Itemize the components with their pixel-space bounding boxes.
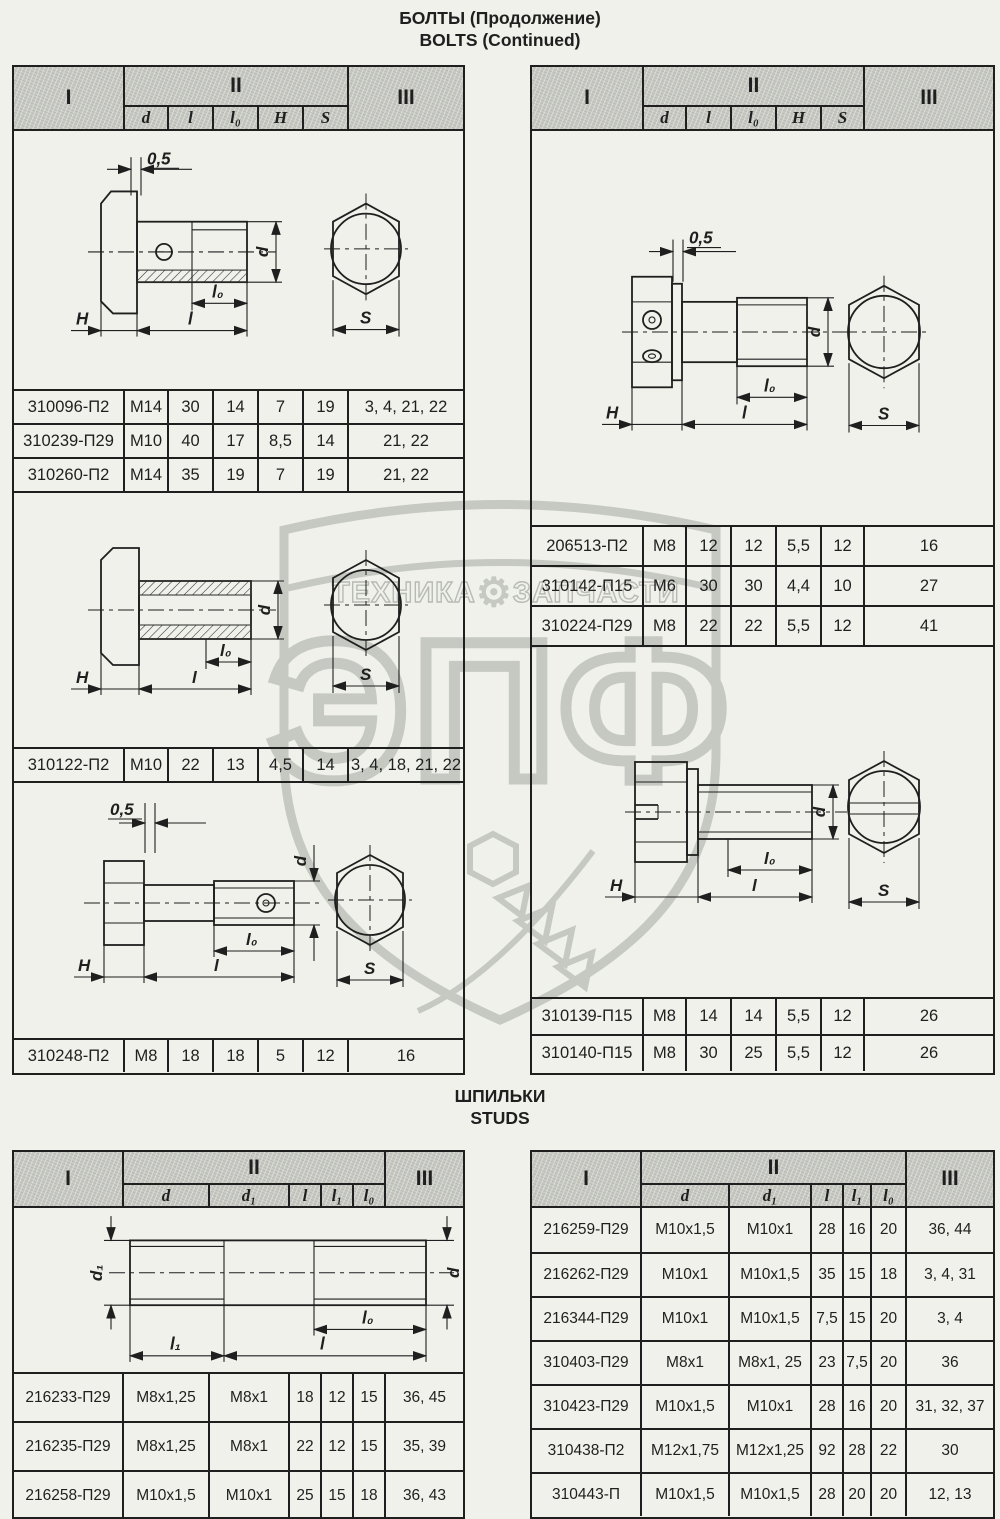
l0-cell: 30 — [732, 567, 777, 605]
table-row: 310423-П29 M10x1,5 M10x1 28 16 20 31, 32… — [532, 1384, 993, 1428]
studs-left-header: I II III d d₁ l l₁ l₀ — [14, 1152, 463, 1208]
d1-cell: M8x1 — [210, 1423, 290, 1470]
l0-cell: 18 — [872, 1254, 907, 1296]
d-cell: M8 — [644, 999, 687, 1034]
refs-cell: 30 — [907, 1430, 993, 1472]
table-row: 310140-П15 M8 30 25 5,5 12 26 — [532, 1034, 993, 1071]
d-cell: M8x1 — [642, 1342, 730, 1384]
l-cell: 18 — [290, 1374, 322, 1421]
l1-cell: 16 — [844, 1386, 872, 1428]
l-cell: 92 — [812, 1430, 844, 1472]
l1-cell: 28 — [844, 1430, 872, 1472]
dim-label: d — [444, 1267, 463, 1278]
refs-cell: 16 — [349, 1040, 463, 1072]
col-group-3: III — [386, 1152, 463, 1206]
d-cell: M10 — [125, 749, 169, 781]
l-cell: 30 — [169, 391, 214, 423]
d-cell: M10x1 — [642, 1298, 730, 1340]
l-cell: 14 — [687, 999, 732, 1034]
d-cell: M10x1 — [642, 1254, 730, 1296]
dim-label: l₀ — [212, 282, 224, 301]
dim-label: d — [810, 806, 829, 817]
col-l0: l₀ — [354, 1185, 386, 1206]
col-group-3: III — [907, 1152, 993, 1206]
d1-cell: M8x1 — [210, 1374, 290, 1421]
refs-cell: 36, 44 — [907, 1208, 993, 1252]
d-cell: M10x1,5 — [124, 1472, 210, 1519]
bolts-left-rows-b: 310122-П2 M10 22 13 4,5 14 3, 4, 18, 21,… — [14, 747, 463, 781]
dim-label: l₀ — [246, 930, 258, 949]
part-number-cell: 310248-П2 — [14, 1040, 125, 1072]
d1-cell: M12x1,25 — [730, 1430, 812, 1472]
d-cell: M6 — [644, 567, 687, 605]
bolt-drawing-hollow: d l₀ l H S — [14, 491, 463, 747]
table-row: 216262-П29 M10x1 M10x1,5 35 15 18 3, 4, … — [532, 1252, 993, 1296]
col-l: l — [169, 107, 214, 129]
part-number-cell: 310239-П29 — [14, 425, 125, 457]
col-l1: l₁ — [322, 1185, 354, 1206]
refs-cell: 41 — [865, 607, 993, 645]
l-cell: 22 — [290, 1423, 322, 1470]
col-H: H — [259, 107, 304, 129]
dim-label: S — [878, 404, 890, 423]
dim-label: d — [291, 855, 310, 866]
dim-label: S — [360, 665, 372, 684]
d-cell: M10x1,5 — [642, 1474, 730, 1516]
dim-label: l₀ — [764, 849, 776, 868]
dim-label: H — [606, 403, 619, 422]
studs-table-right: I II III d d₁ l l₁ l₀ 216259-П29 M10x1,5… — [530, 1150, 995, 1519]
col-l: l — [812, 1185, 844, 1206]
part-number-cell: 310443-П — [532, 1474, 642, 1516]
H-cell: 5,5 — [777, 527, 822, 565]
d-cell: M14 — [125, 459, 169, 491]
table-row: 310122-П2 M10 22 13 4,5 14 3, 4, 18, 21,… — [14, 747, 463, 781]
page-title-en: BOLTS (Continued) — [0, 30, 1000, 52]
col-d1: d₁ — [730, 1185, 812, 1206]
dim-label: l₀ — [220, 641, 232, 660]
d-cell: M10x1,5 — [642, 1386, 730, 1428]
refs-cell: 26 — [865, 999, 993, 1034]
part-number-cell: 310140-П15 — [532, 1036, 644, 1071]
d1-cell: M8x1, 25 — [730, 1342, 812, 1384]
d1-cell: M10x1,5 — [730, 1254, 812, 1296]
col-d: d — [644, 107, 687, 129]
table-row: 310403-П29 M8x1 M8x1, 25 23 7,5 20 36 — [532, 1340, 993, 1384]
d-cell: M8 — [644, 527, 687, 565]
part-number-cell: 310423-П29 — [532, 1386, 642, 1428]
bolts-table-left: I II III d l l₀ H S — [12, 65, 465, 1075]
col-group-1: I — [532, 67, 644, 129]
dim-label: d — [253, 246, 272, 257]
H-cell: 7 — [259, 459, 304, 491]
l0-cell: 17 — [214, 425, 259, 457]
bolts-left-header: I II III d l l₀ H S — [14, 67, 463, 131]
S-cell: 14 — [304, 749, 349, 781]
col-group-2: II — [124, 1152, 386, 1185]
H-cell: 5,5 — [777, 607, 822, 645]
part-number-cell: 310122-П2 — [14, 749, 125, 781]
dim-label: d₁ — [87, 1265, 106, 1282]
l1-cell: 12 — [322, 1423, 354, 1470]
refs-cell: 26 — [865, 1036, 993, 1071]
studs-right-rows: 216259-П29 M10x1,5 M10x1 28 16 20 36, 44… — [532, 1208, 993, 1516]
table-row: 310239-П29 M10 40 17 8,5 14 21, 22 — [14, 423, 463, 457]
bolts-right-rows-a: 206513-П2 M8 12 12 5,5 12 16 310142-П15 … — [532, 525, 993, 645]
l1-cell: 15 — [844, 1254, 872, 1296]
part-number-cell: 216233-П29 — [14, 1374, 124, 1421]
S-cell: 12 — [822, 607, 865, 645]
part-number-cell: 206513-П2 — [532, 527, 644, 565]
refs-cell: 16 — [865, 527, 993, 565]
col-group-1: I — [532, 1152, 642, 1206]
col-d1: d₁ — [210, 1185, 290, 1206]
refs-cell: 36, 45 — [386, 1374, 463, 1421]
part-number-cell: 216344-П29 — [532, 1298, 642, 1340]
d-cell: M10 — [125, 425, 169, 457]
dim-label: 0,5 — [110, 800, 134, 819]
S-cell: 12 — [822, 999, 865, 1034]
dim-label: l₀ — [362, 1308, 374, 1327]
S-cell: 14 — [304, 425, 349, 457]
studs-right-header: I II III d d₁ l l₁ l₀ — [532, 1152, 993, 1208]
bolts-right-rows-b: 310139-П15 M8 14 14 5,5 12 26 310140-П15… — [532, 997, 993, 1071]
dim-label: 0,5 — [689, 229, 713, 248]
table-row: 216259-П29 M10x1,5 M10x1 28 16 20 36, 44 — [532, 1208, 993, 1252]
refs-cell: 3, 4, 21, 22 — [349, 391, 463, 423]
col-l1: l₁ — [844, 1185, 872, 1206]
S-cell: 12 — [822, 527, 865, 565]
d1-cell: M10x1,5 — [730, 1298, 812, 1340]
l0-cell: 19 — [214, 459, 259, 491]
dim-label: l — [188, 309, 194, 328]
S-cell: 19 — [304, 391, 349, 423]
l0-cell: 20 — [872, 1298, 907, 1340]
l-cell: 23 — [812, 1342, 844, 1384]
dim-label: d — [805, 326, 824, 337]
l0-cell: 14 — [214, 391, 259, 423]
d1-cell: M10x1,5 — [730, 1474, 812, 1516]
dim-label: d — [255, 604, 274, 615]
col-d: d — [125, 107, 169, 129]
l0-cell: 25 — [732, 1036, 777, 1071]
d1-cell: M10x1 — [730, 1208, 812, 1252]
dim-label: H — [610, 876, 623, 895]
refs-cell: 21, 22 — [349, 425, 463, 457]
table-row: 310443-П M10x1,5 M10x1,5 28 20 20 12, 13 — [532, 1472, 993, 1516]
bolt-drawing-banjo: 0,5 d l₀ l H S — [14, 131, 463, 389]
l1-cell: 15 — [844, 1298, 872, 1340]
col-group-2: II — [642, 1152, 907, 1185]
col-group-3: III — [349, 67, 463, 129]
table-row: 310139-П15 M8 14 14 5,5 12 26 — [532, 997, 993, 1034]
d-cell: M10x1,5 — [642, 1208, 730, 1252]
l-cell: 22 — [169, 749, 214, 781]
col-d: d — [124, 1185, 210, 1206]
l-cell: 28 — [812, 1386, 844, 1428]
table-row: 310248-П2 M8 18 18 5 12 16 — [14, 1038, 463, 1072]
part-number-cell: 310096-П2 — [14, 391, 125, 423]
part-number-cell: 216258-П29 — [14, 1472, 124, 1519]
l-cell: 35 — [812, 1254, 844, 1296]
l1-cell: 20 — [844, 1474, 872, 1516]
part-number-cell: 310260-П2 — [14, 459, 125, 491]
col-l0: l₀ — [214, 107, 259, 129]
table-row: 310224-П29 M8 22 22 5,5 12 41 — [532, 605, 993, 645]
table-row: 216344-П29 M10x1 M10x1,5 7,5 15 20 3, 4 — [532, 1296, 993, 1340]
dim-label: l — [320, 1335, 326, 1354]
col-S: S — [304, 107, 349, 129]
refs-cell: 3, 4, 31 — [907, 1254, 993, 1296]
l1-cell: 15 — [322, 1472, 354, 1519]
table-row: 216258-П29 M10x1,5 M10x1 25 15 18 36, 43 — [14, 1470, 463, 1519]
l-cell: 18 — [169, 1040, 214, 1072]
dim-label: S — [878, 881, 890, 900]
col-l: l — [687, 107, 732, 129]
col-l0: l₀ — [732, 107, 777, 129]
H-cell: 4,5 — [259, 749, 304, 781]
refs-cell: 21, 22 — [349, 459, 463, 491]
l0-cell: 22 — [872, 1430, 907, 1472]
H-cell: 7 — [259, 391, 304, 423]
l0-cell: 15 — [354, 1374, 386, 1421]
l-cell: 28 — [812, 1474, 844, 1516]
part-number-cell: 216235-П29 — [14, 1423, 124, 1470]
table-row: 310096-П2 M14 30 14 7 19 3, 4, 21, 22 — [14, 389, 463, 423]
l1-cell: 7,5 — [844, 1342, 872, 1384]
d-cell: M8 — [644, 1036, 687, 1071]
table-row: 310260-П2 M14 35 19 7 19 21, 22 — [14, 457, 463, 491]
l0-cell: 15 — [354, 1423, 386, 1470]
table-row: 310438-П2 M12x1,75 M12x1,25 92 28 22 30 — [532, 1428, 993, 1472]
studs-title-en: STUDS — [0, 1108, 1000, 1130]
studs-table-left: I II III d d₁ l l₁ l₀ d₁ — [12, 1150, 465, 1519]
l-cell: 7,5 — [812, 1298, 844, 1340]
bolts-right-header: I II III d l l₀ H S — [532, 67, 993, 131]
bolts-table-right: I II III d l l₀ H S 0,5 — [530, 65, 995, 1075]
dim-label: l — [752, 876, 758, 895]
part-number-cell: 216259-П29 — [532, 1208, 642, 1252]
dim-label: 0,5 — [147, 149, 171, 168]
studs-left-rows: 216233-П29 M8x1,25 M8x1 18 12 15 36, 45 … — [14, 1372, 463, 1519]
dim-label: H — [76, 309, 89, 328]
col-group-1: I — [14, 1152, 124, 1206]
l-cell: 30 — [687, 567, 732, 605]
dim-label: l — [214, 956, 220, 975]
l-cell: 22 — [687, 607, 732, 645]
S-cell: 10 — [822, 567, 865, 605]
col-group-2: II — [644, 67, 865, 107]
bolt-drawing-drilled-head: 0,5 d l₀ l H S — [532, 131, 993, 525]
S-cell: 12 — [304, 1040, 349, 1072]
dim-label: H — [76, 668, 89, 687]
l0-cell: 18 — [354, 1472, 386, 1519]
l-cell: 40 — [169, 425, 214, 457]
col-S: S — [822, 107, 865, 129]
dim-label: l₀ — [764, 376, 776, 395]
dim-label: S — [360, 308, 372, 327]
l-cell: 35 — [169, 459, 214, 491]
part-number-cell: 310224-П29 — [532, 607, 644, 645]
dim-label: H — [78, 956, 91, 975]
l1-cell: 16 — [844, 1208, 872, 1252]
col-group-1: I — [14, 67, 125, 129]
H-cell: 4,4 — [777, 567, 822, 605]
bolts-left-rows-c: 310248-П2 M8 18 18 5 12 16 — [14, 1038, 463, 1072]
l0-cell: 22 — [732, 607, 777, 645]
d-cell: M14 — [125, 391, 169, 423]
dim-label: l₁ — [170, 1335, 181, 1354]
refs-cell: 3, 4 — [907, 1298, 993, 1340]
refs-cell: 12, 13 — [907, 1474, 993, 1516]
refs-cell: 36 — [907, 1342, 993, 1384]
table-row: 216233-П29 M8x1,25 M8x1 18 12 15 36, 45 — [14, 1372, 463, 1421]
col-l0: l₀ — [872, 1185, 907, 1206]
col-d: d — [642, 1185, 730, 1206]
l0-cell: 18 — [214, 1040, 259, 1072]
l-cell: 30 — [687, 1036, 732, 1071]
d1-cell: M10x1 — [730, 1386, 812, 1428]
H-cell: 5 — [259, 1040, 304, 1072]
H-cell: 8,5 — [259, 425, 304, 457]
col-l: l — [290, 1185, 322, 1206]
col-group-2: II — [125, 67, 349, 107]
l0-cell: 20 — [872, 1474, 907, 1516]
H-cell: 5,5 — [777, 999, 822, 1034]
dim-label: l — [192, 668, 198, 687]
d-cell: M8 — [644, 607, 687, 645]
S-cell: 19 — [304, 459, 349, 491]
bolt-drawing-cotter: 0,5 d l₀ l H S — [14, 781, 463, 1038]
col-group-3: III — [865, 67, 993, 129]
l1-cell: 12 — [322, 1374, 354, 1421]
l0-cell: 12 — [732, 527, 777, 565]
dim-label: S — [364, 959, 376, 978]
studs-title-ru: ШПИЛЬКИ — [0, 1086, 1000, 1108]
l0-cell: 20 — [872, 1386, 907, 1428]
part-number-cell: 216262-П29 — [532, 1254, 642, 1296]
l0-cell: 13 — [214, 749, 259, 781]
d-cell: M8 — [125, 1040, 169, 1072]
dim-label: l — [742, 403, 748, 422]
studs-section-title: ШПИЛЬКИ STUDS — [0, 1086, 1000, 1130]
bolt-drawing-slotted: d l₀ l H S — [532, 645, 993, 997]
l-cell: 12 — [687, 527, 732, 565]
col-H: H — [777, 107, 822, 129]
l-cell: 25 — [290, 1472, 322, 1519]
page-title: БОЛТЫ (Продолжение) BOLTS (Continued) — [0, 8, 1000, 52]
l0-cell: 20 — [872, 1342, 907, 1384]
table-row: 310142-П15 M6 30 30 4,4 10 27 — [532, 565, 993, 605]
d1-cell: M10x1 — [210, 1472, 290, 1519]
stud-drawing: d₁ d l₀ l₁ l — [14, 1208, 463, 1372]
part-number-cell: 310438-П2 — [532, 1430, 642, 1472]
l0-cell: 14 — [732, 999, 777, 1034]
table-row: 206513-П2 M8 12 12 5,5 12 16 — [532, 525, 993, 565]
l0-cell: 20 — [872, 1208, 907, 1252]
refs-cell: 27 — [865, 567, 993, 605]
table-row: 216235-П29 M8x1,25 M8x1 22 12 15 35, 39 — [14, 1421, 463, 1470]
refs-cell: 35, 39 — [386, 1423, 463, 1470]
H-cell: 5,5 — [777, 1036, 822, 1071]
l-cell: 28 — [812, 1208, 844, 1252]
refs-cell: 36, 43 — [386, 1472, 463, 1519]
refs-cell: 3, 4, 18, 21, 22 — [349, 749, 463, 781]
page-title-ru: БОЛТЫ (Продолжение) — [0, 8, 1000, 30]
refs-cell: 31, 32, 37 — [907, 1386, 993, 1428]
bolts-left-rows-a: 310096-П2 M14 30 14 7 19 3, 4, 21, 22 31… — [14, 389, 463, 491]
d-cell: M8x1,25 — [124, 1374, 210, 1421]
d-cell: M8x1,25 — [124, 1423, 210, 1470]
part-number-cell: 310142-П15 — [532, 567, 644, 605]
S-cell: 12 — [822, 1036, 865, 1071]
d-cell: M12x1,75 — [642, 1430, 730, 1472]
part-number-cell: 310403-П29 — [532, 1342, 642, 1384]
part-number-cell: 310139-П15 — [532, 999, 644, 1034]
